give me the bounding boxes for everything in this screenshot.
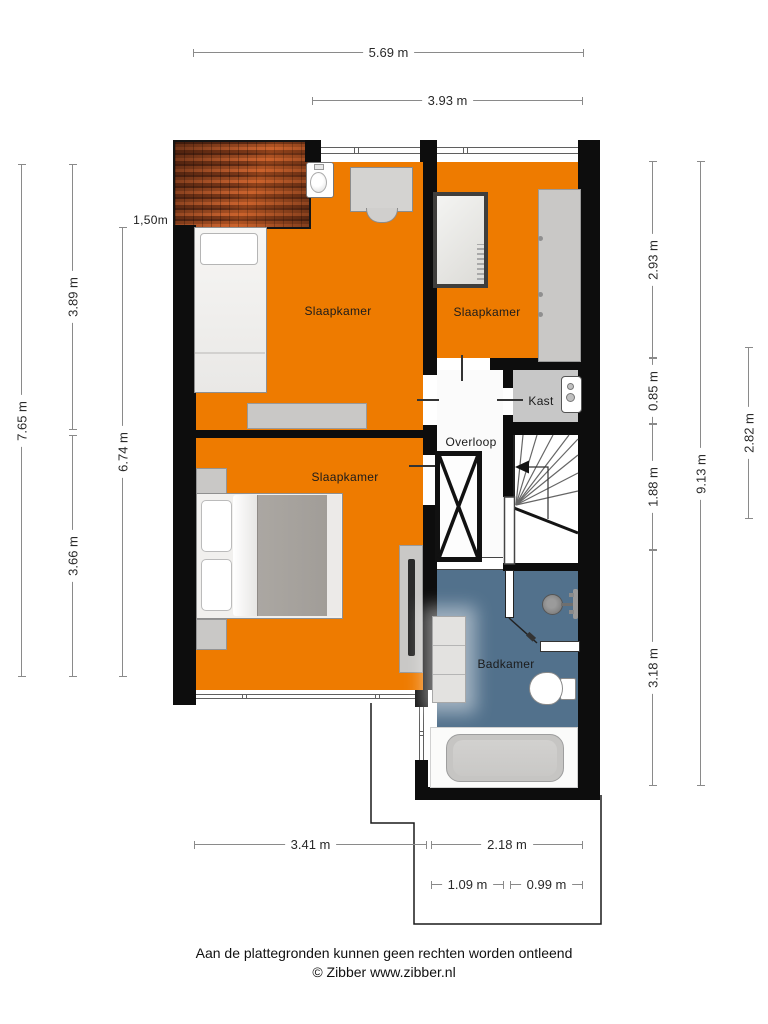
dimension-right-seg3: 1.88 m xyxy=(652,424,653,550)
knob-icon xyxy=(538,236,543,241)
door-leaf-icon xyxy=(409,465,437,467)
dimension-right-inner: 2.82 m xyxy=(748,348,749,518)
single-bed-icon xyxy=(433,192,488,288)
desk-icon xyxy=(350,167,413,212)
tv-icon xyxy=(408,559,415,656)
door-leaf-icon xyxy=(461,355,463,381)
dimension-left-upper: 3.89 m xyxy=(72,165,73,429)
duvet xyxy=(257,495,327,616)
shower-partition-wall xyxy=(540,641,580,652)
height-annotation: 1,50m xyxy=(110,213,168,227)
single-bed-icon xyxy=(194,227,267,393)
room-label-bedroom-bottom-left: Slaapkamer xyxy=(285,470,405,484)
wardrobe-icon xyxy=(538,189,581,362)
wall-bedrooms-left-divider xyxy=(196,430,437,438)
duvet-fold xyxy=(327,495,341,616)
dimension-right-seg1: 2.93 m xyxy=(652,162,653,358)
pillow-icon xyxy=(201,500,232,552)
window-icon xyxy=(437,140,578,162)
dimension-top-outer: 5.69 m xyxy=(194,52,583,53)
room-label-landing: Overloop xyxy=(421,435,521,449)
sink-icon xyxy=(306,162,334,198)
floorplan-page: Slaapkamer Slaapkamer Slaapkamer Kast Ov… xyxy=(0,0,768,1024)
dimension-left-inner: 6.74 m xyxy=(122,228,123,676)
dimension-top-inner: 3.93 m xyxy=(313,100,582,101)
dimension-bottom-sub2: 0.99 m xyxy=(511,884,582,885)
door-opening-bedroom-top-right xyxy=(437,358,490,370)
knob-icon xyxy=(538,292,543,297)
dimension-bottom-left: 3.41 m xyxy=(195,844,426,845)
nightstand-icon xyxy=(196,619,227,650)
disclaimer-text: Aan de plattegronden kunnen geen rechten… xyxy=(0,945,768,961)
void-shaft-icon xyxy=(435,451,482,562)
pillow-icon xyxy=(201,559,232,611)
copyright-text: © Zibber www.zibber.nl xyxy=(0,964,768,980)
shower-head-icon xyxy=(542,594,563,615)
dimension-left-total: 7.65 m xyxy=(21,165,22,676)
room-label-bathroom: Badkamer xyxy=(446,657,566,671)
dresser-icon xyxy=(247,403,367,429)
dimension-bottom-right: 2.18 m xyxy=(432,844,582,845)
sheet-fold xyxy=(233,495,258,616)
lower-floor-outline xyxy=(360,700,610,932)
roof-tiles xyxy=(173,140,311,229)
double-bed-icon xyxy=(196,493,343,619)
window-icon xyxy=(321,140,420,162)
room-label-bedroom-top-left: Slaapkamer xyxy=(278,304,398,318)
dimension-left-lower: 3.66 m xyxy=(72,436,73,676)
shower-bracket-nub xyxy=(569,593,574,597)
room-label-bedroom-top-right: Slaapkamer xyxy=(427,305,547,319)
dimension-right-seg4: 3.18 m xyxy=(652,550,653,785)
wall-top-left-segment xyxy=(305,140,321,162)
dimension-right-seg2: 0.85 m xyxy=(652,358,653,424)
dimension-right-total: 9.13 m xyxy=(700,162,701,785)
dimension-bottom-sub1: 1.09 m xyxy=(432,884,503,885)
door-leaf-icon xyxy=(417,399,439,401)
shower-bracket-nub xyxy=(569,610,574,614)
room-label-closet: Kast xyxy=(511,394,571,408)
wall-left xyxy=(173,225,196,705)
wall-window-divider xyxy=(420,140,437,162)
